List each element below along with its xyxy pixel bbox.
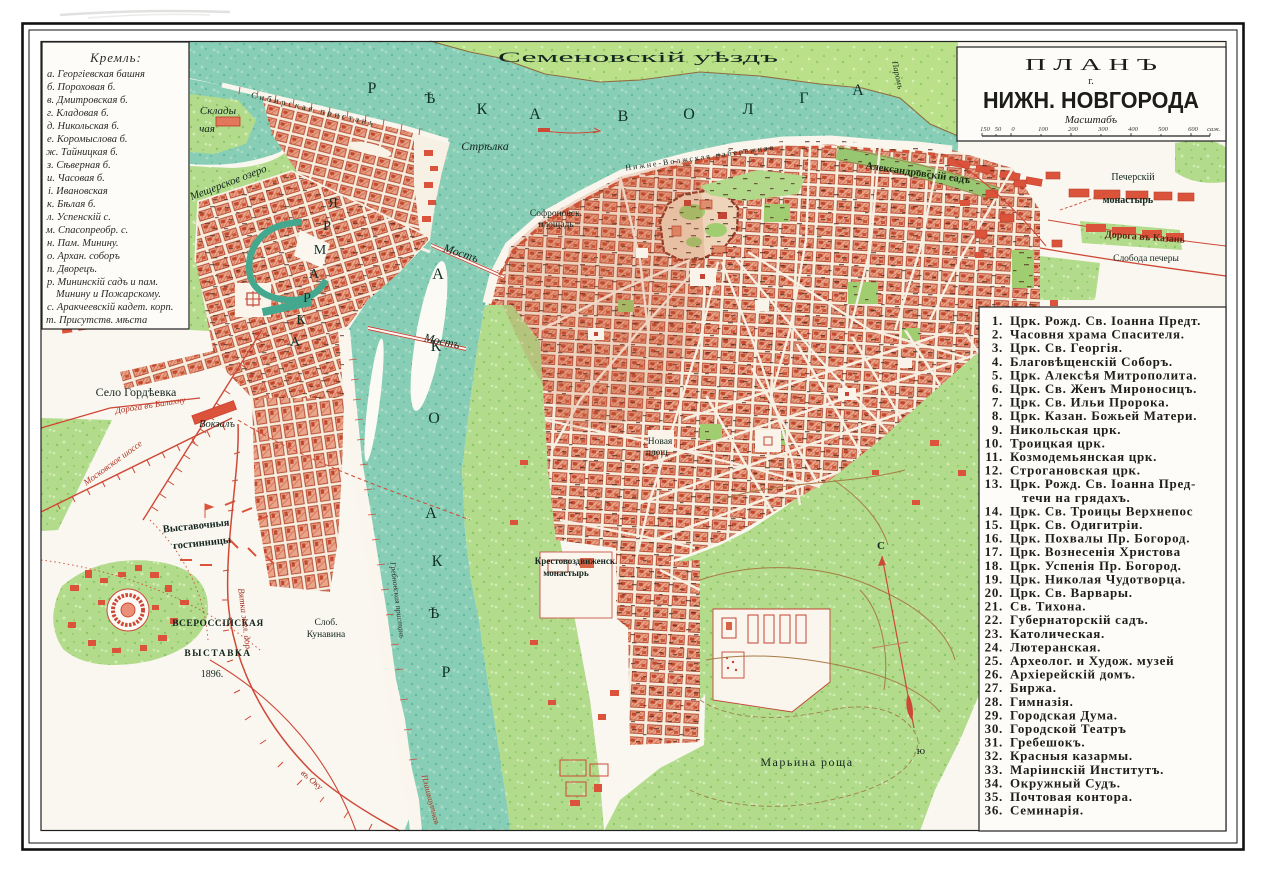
- svg-text:Р: Р: [368, 80, 377, 97]
- svg-text:г. Кладовая б.: г. Кладовая б.: [47, 108, 109, 119]
- svg-text:Вокзалъ: Вокзалъ: [199, 419, 235, 430]
- svg-text:м. Спасопреобр. с.: м. Спасопреобр. с.: [45, 225, 128, 236]
- svg-text:К: К: [432, 553, 443, 570]
- svg-text:В: В: [618, 108, 629, 125]
- svg-text:в. Дмитровская б.: в. Дмитровская б.: [47, 95, 128, 106]
- svg-text:б. Пороховая б.: б. Пороховая б.: [47, 82, 115, 93]
- svg-text:площадь: площадь: [538, 220, 574, 230]
- svg-text:Р: Р: [303, 291, 311, 306]
- svg-text:А: А: [852, 82, 864, 99]
- svg-text:300: 300: [1097, 126, 1109, 133]
- svg-text:К: К: [296, 313, 306, 328]
- svg-text:е. Коромыслова б.: е. Коромыслова б.: [47, 134, 128, 145]
- svg-text:Г: Г: [799, 90, 808, 107]
- svg-text:ж. Тайницкая б.: ж. Тайницкая б.: [46, 147, 118, 158]
- svg-text:о. Архан. соборъ: о. Архан. соборъ: [47, 251, 120, 262]
- svg-text:Слоб.: Слоб.: [314, 617, 337, 628]
- svg-text:монастырь: монастырь: [543, 568, 589, 578]
- svg-text:500: 500: [1158, 126, 1169, 133]
- svg-text:с. Аракчеевскій кадет. корп.: с. Аракчеевскій кадет. корп.: [47, 302, 173, 313]
- svg-text:Л: Л: [743, 101, 754, 118]
- svg-text:ю: ю: [917, 745, 925, 757]
- svg-text:Слобода печеры: Слобода печеры: [1113, 253, 1179, 264]
- svg-text:М: М: [314, 243, 327, 258]
- svg-text:400: 400: [1128, 126, 1139, 133]
- svg-text:т. Присутств. мѣста: т. Присутств. мѣста: [46, 315, 147, 326]
- svg-text:Марьина роща: Марьина роща: [760, 755, 853, 769]
- svg-text:1896.: 1896.: [201, 669, 224, 680]
- svg-text:600: 600: [1188, 126, 1199, 133]
- svg-text:и. Часовая б.: и. Часовая б.: [47, 173, 105, 184]
- svg-text:площ.: площ.: [646, 448, 670, 458]
- svg-text:з. Сѣверная б.: з. Сѣверная б.: [46, 160, 111, 171]
- svg-text:Кунавина: Кунавина: [307, 630, 346, 640]
- svg-text:монастырь: монастырь: [1103, 195, 1154, 206]
- svg-text:Ѣ: Ѣ: [429, 605, 440, 622]
- svg-text:Р: Р: [442, 664, 451, 681]
- svg-text:н. Пам. Минину.: н. Пам. Минину.: [47, 238, 119, 249]
- svg-text:г.: г.: [1088, 76, 1093, 87]
- svg-text:13.: 13.: [985, 476, 1003, 491]
- svg-text:саж.: саж.: [1207, 126, 1221, 133]
- svg-text:А: А: [309, 267, 320, 282]
- svg-text:С: С: [877, 540, 885, 552]
- svg-text:Я: Я: [328, 196, 337, 211]
- svg-text:Семеновскій уѣздъ: Семеновскій уѣздъ: [498, 50, 779, 66]
- svg-text:і. Ивановская: і. Ивановская: [48, 186, 108, 197]
- svg-text:п. Дворецъ.: п. Дворецъ.: [47, 264, 97, 275]
- svg-text:Масштабъ: Масштабъ: [1064, 114, 1118, 126]
- svg-text:Крестовоздвиженск.: Крестовоздвиженск.: [535, 556, 618, 566]
- svg-text:Кремль:: Кремль:: [89, 50, 142, 65]
- svg-text:200: 200: [1068, 126, 1079, 133]
- svg-text:Стрѣлка: Стрѣлка: [461, 139, 508, 153]
- svg-text:А: А: [432, 266, 444, 283]
- svg-text:А: А: [425, 505, 437, 522]
- svg-text:Печерскій: Печерскій: [1111, 172, 1155, 183]
- svg-text:Новая: Новая: [648, 437, 673, 447]
- svg-text:а. Георгіевская башня: а. Георгіевская башня: [47, 69, 145, 80]
- svg-text:П Л А Н Ъ: П Л А Н Ъ: [1025, 55, 1158, 74]
- svg-text:Склады: Склады: [200, 105, 237, 117]
- svg-text:ВЫСТАВКА: ВЫСТАВКА: [184, 649, 251, 659]
- svg-text:О: О: [428, 410, 440, 427]
- svg-text:р. Мининскій садъ и пам.: р. Мининскій садъ и пам.: [46, 277, 158, 288]
- svg-text:50: 50: [995, 126, 1002, 133]
- svg-text:А: А: [529, 106, 541, 123]
- svg-text:чая: чая: [199, 123, 215, 135]
- svg-text:к. Бѣлая б.: к. Бѣлая б.: [47, 199, 96, 210]
- svg-text:НИЖН. НОВГОРОДА: НИЖН. НОВГОРОДА: [983, 87, 1199, 113]
- svg-text:Софроновск.: Софроновск.: [530, 208, 582, 219]
- svg-text:Р: Р: [323, 219, 331, 234]
- svg-text:36.: 36.: [985, 803, 1003, 818]
- svg-text:О: О: [683, 106, 695, 123]
- svg-text:А: А: [290, 335, 301, 350]
- svg-text:Семинарія.: Семинарія.: [1010, 803, 1084, 818]
- svg-text:д. Никольская б.: д. Никольская б.: [47, 121, 119, 132]
- svg-text:Ѣ: Ѣ: [425, 90, 436, 107]
- svg-text:К: К: [477, 101, 488, 118]
- svg-text:150: 150: [980, 126, 991, 133]
- svg-text:л. Успенскій с.: л. Успенскій с.: [46, 212, 111, 223]
- svg-text:Минину и Пожарскому.: Минину и Пожарскому.: [55, 289, 161, 300]
- svg-text:100: 100: [1038, 126, 1049, 133]
